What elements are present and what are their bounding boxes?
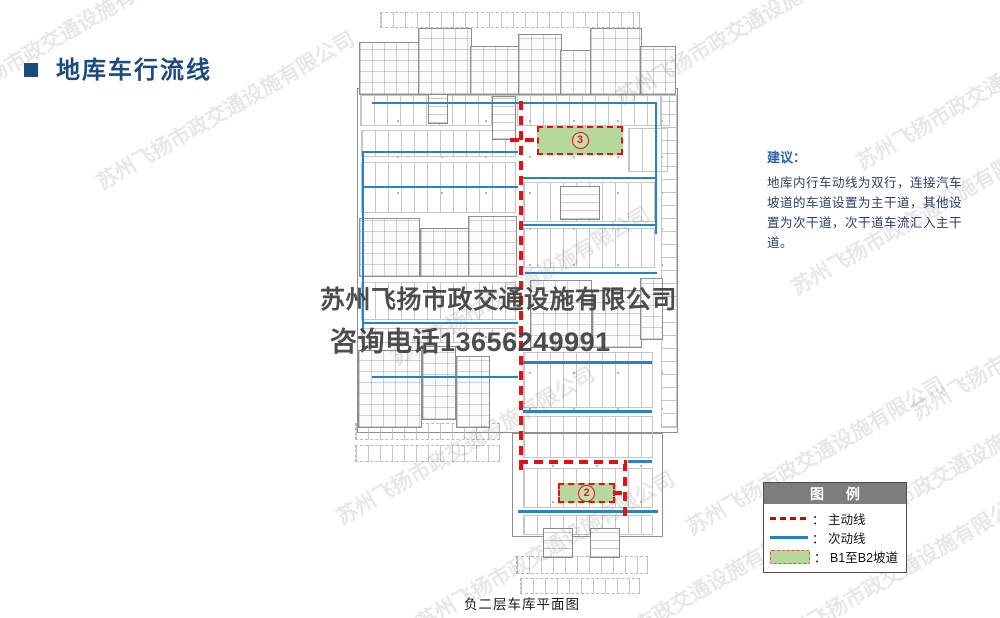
outdoor-stalls — [380, 12, 640, 28]
suggestion-line: 置为次干道，次干道车流汇入主干 — [767, 213, 967, 233]
title-bullet-square — [24, 63, 38, 77]
ramp-number-2: 2 — [578, 485, 595, 502]
ramp-b1-b2-area-3: 3 — [537, 126, 623, 155]
main-flow-line-stub — [510, 138, 538, 142]
blue-solid-line-swatch — [770, 536, 808, 539]
building-outline — [468, 216, 517, 277]
suggestion-panel: 建议： 地库内行车动线为双行，连接汽车 坡道的车道设置为主干道，其他设 置为次干… — [767, 147, 967, 253]
outdoor-stalls — [520, 578, 640, 594]
legend-box: 图 例 ： 主动线 ： 次动线 ： B1至B2坡道 — [763, 482, 907, 573]
secondary-flow-line — [372, 376, 518, 378]
legend-header: 图 例 — [764, 483, 906, 504]
stall-band-vertical — [661, 95, 677, 428]
plan-caption: 负二层车库平面图 — [464, 593, 580, 613]
suggestion-line: 道。 — [767, 233, 967, 253]
building-outline — [418, 28, 472, 95]
legend-rows: ： 主动线 ： 次动线 ： B1至B2坡道 — [764, 504, 906, 572]
building-outline — [359, 218, 420, 277]
secondary-flow-line — [655, 102, 657, 234]
building-outline — [518, 34, 562, 95]
legend-label: ： 次动线 — [812, 528, 865, 547]
page-title: 地库车行流线 — [56, 50, 212, 85]
green-ramp-swatch — [770, 550, 810, 564]
secondary-flow-line — [628, 460, 652, 463]
stair-core — [428, 94, 448, 124]
suggestion-line: 地库内行车动线为双行，连接汽车 — [767, 173, 967, 193]
suggestion-line: 坡道的车道设置为主干道，其他设 — [767, 193, 967, 213]
stall-band — [523, 416, 653, 458]
main-flow-line — [519, 460, 627, 464]
secondary-flow-line — [363, 151, 518, 153]
building-outline — [420, 228, 470, 277]
suggestion-heading: 建议： — [767, 147, 967, 166]
legend-label: ： 主动线 — [812, 509, 865, 528]
slide: 地库车行流线 3 2 苏州飞扬市政交通设施有限公司 咨询电话1365624999… — [0, 0, 1000, 618]
building-outline — [560, 50, 592, 95]
legend-item-secondary-line: ： 次动线 — [770, 528, 901, 547]
building-outline — [359, 42, 421, 95]
center-watermark-line1: 苏州飞扬市政交通设施有限公司 — [320, 280, 677, 316]
legend-item-ramp: ： B1至B2坡道 — [770, 547, 901, 566]
secondary-flow-line — [363, 186, 518, 188]
legend-item-main-line: ： 主动线 — [770, 509, 901, 528]
building-outline — [470, 46, 520, 95]
ramp-number-3: 3 — [572, 132, 589, 149]
stair-core — [560, 186, 600, 220]
center-watermark-line2: 咨询电话13656249991 — [330, 320, 611, 359]
legend-label: ： B1至B2坡道 — [814, 547, 898, 566]
secondary-flow-line — [372, 102, 656, 104]
red-dashed-line-swatch — [770, 517, 808, 520]
secondary-flow-line — [523, 177, 657, 179]
